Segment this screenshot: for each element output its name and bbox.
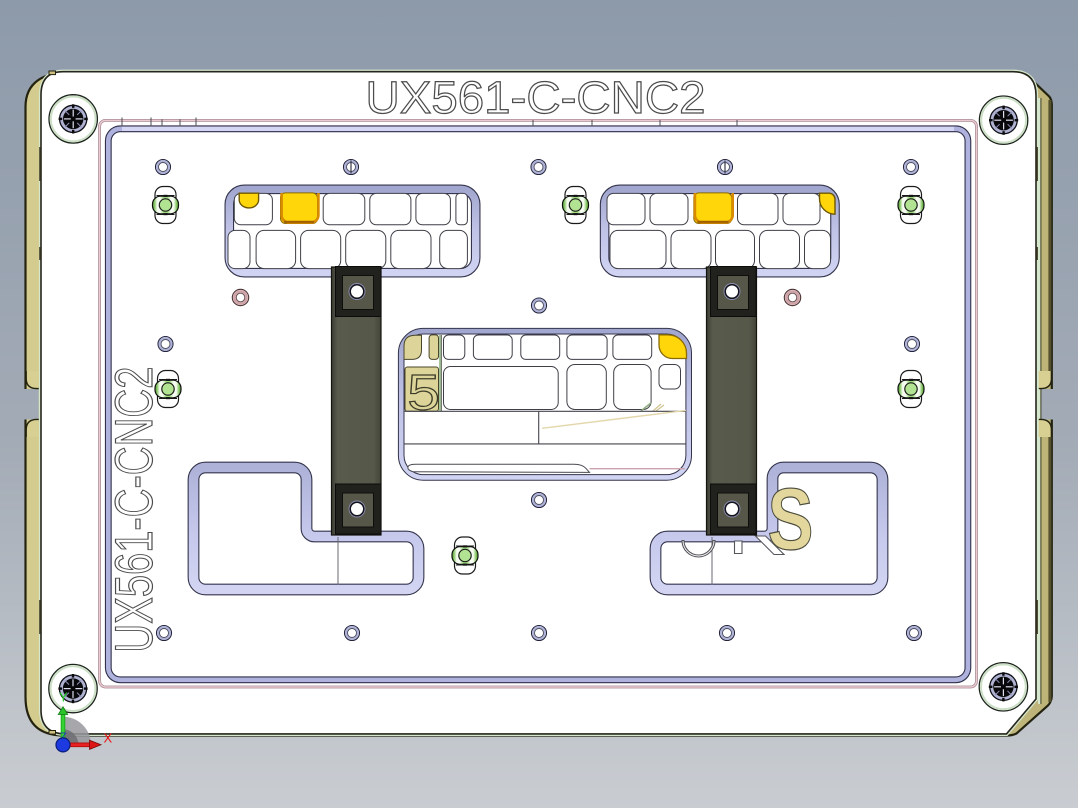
svg-text:S: S — [768, 471, 814, 568]
svg-text:Y: Y — [59, 690, 68, 705]
svg-text:UX561-C-CNC2: UX561-C-CNC2 — [366, 72, 706, 123]
svg-text:X: X — [104, 731, 113, 746]
svg-text:5: 5 — [407, 365, 440, 421]
svg-text:UX561-C-CNC2: UX561-C-CNC2 — [105, 367, 164, 653]
